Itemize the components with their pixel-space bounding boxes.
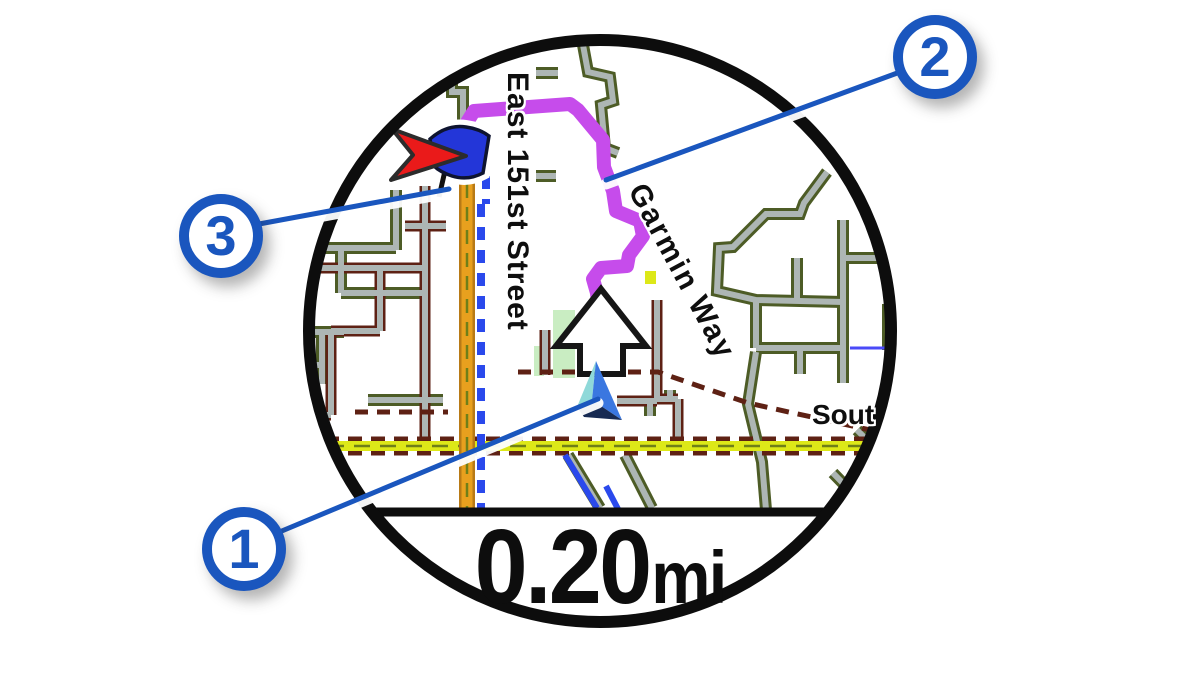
street-label-east-151st: East 151st Street <box>502 72 532 331</box>
callout-badge-2: 2 <box>893 15 977 99</box>
street-label-south: Sout <box>812 401 874 429</box>
callout-badge-1: 1 <box>202 507 286 591</box>
distance-value: 0.20 <box>475 514 650 620</box>
distance-data-field: 0.20 mi <box>334 514 867 620</box>
distance-unit: mi <box>651 541 725 615</box>
callout-number: 3 <box>205 208 236 264</box>
callout-number: 2 <box>919 29 950 85</box>
garmin-watch-map-illustration: East 151st Street Garmin Way Sout 0.20 m… <box>0 0 1200 676</box>
callout-badge-3: 3 <box>179 194 263 278</box>
callout-number: 1 <box>228 521 259 577</box>
